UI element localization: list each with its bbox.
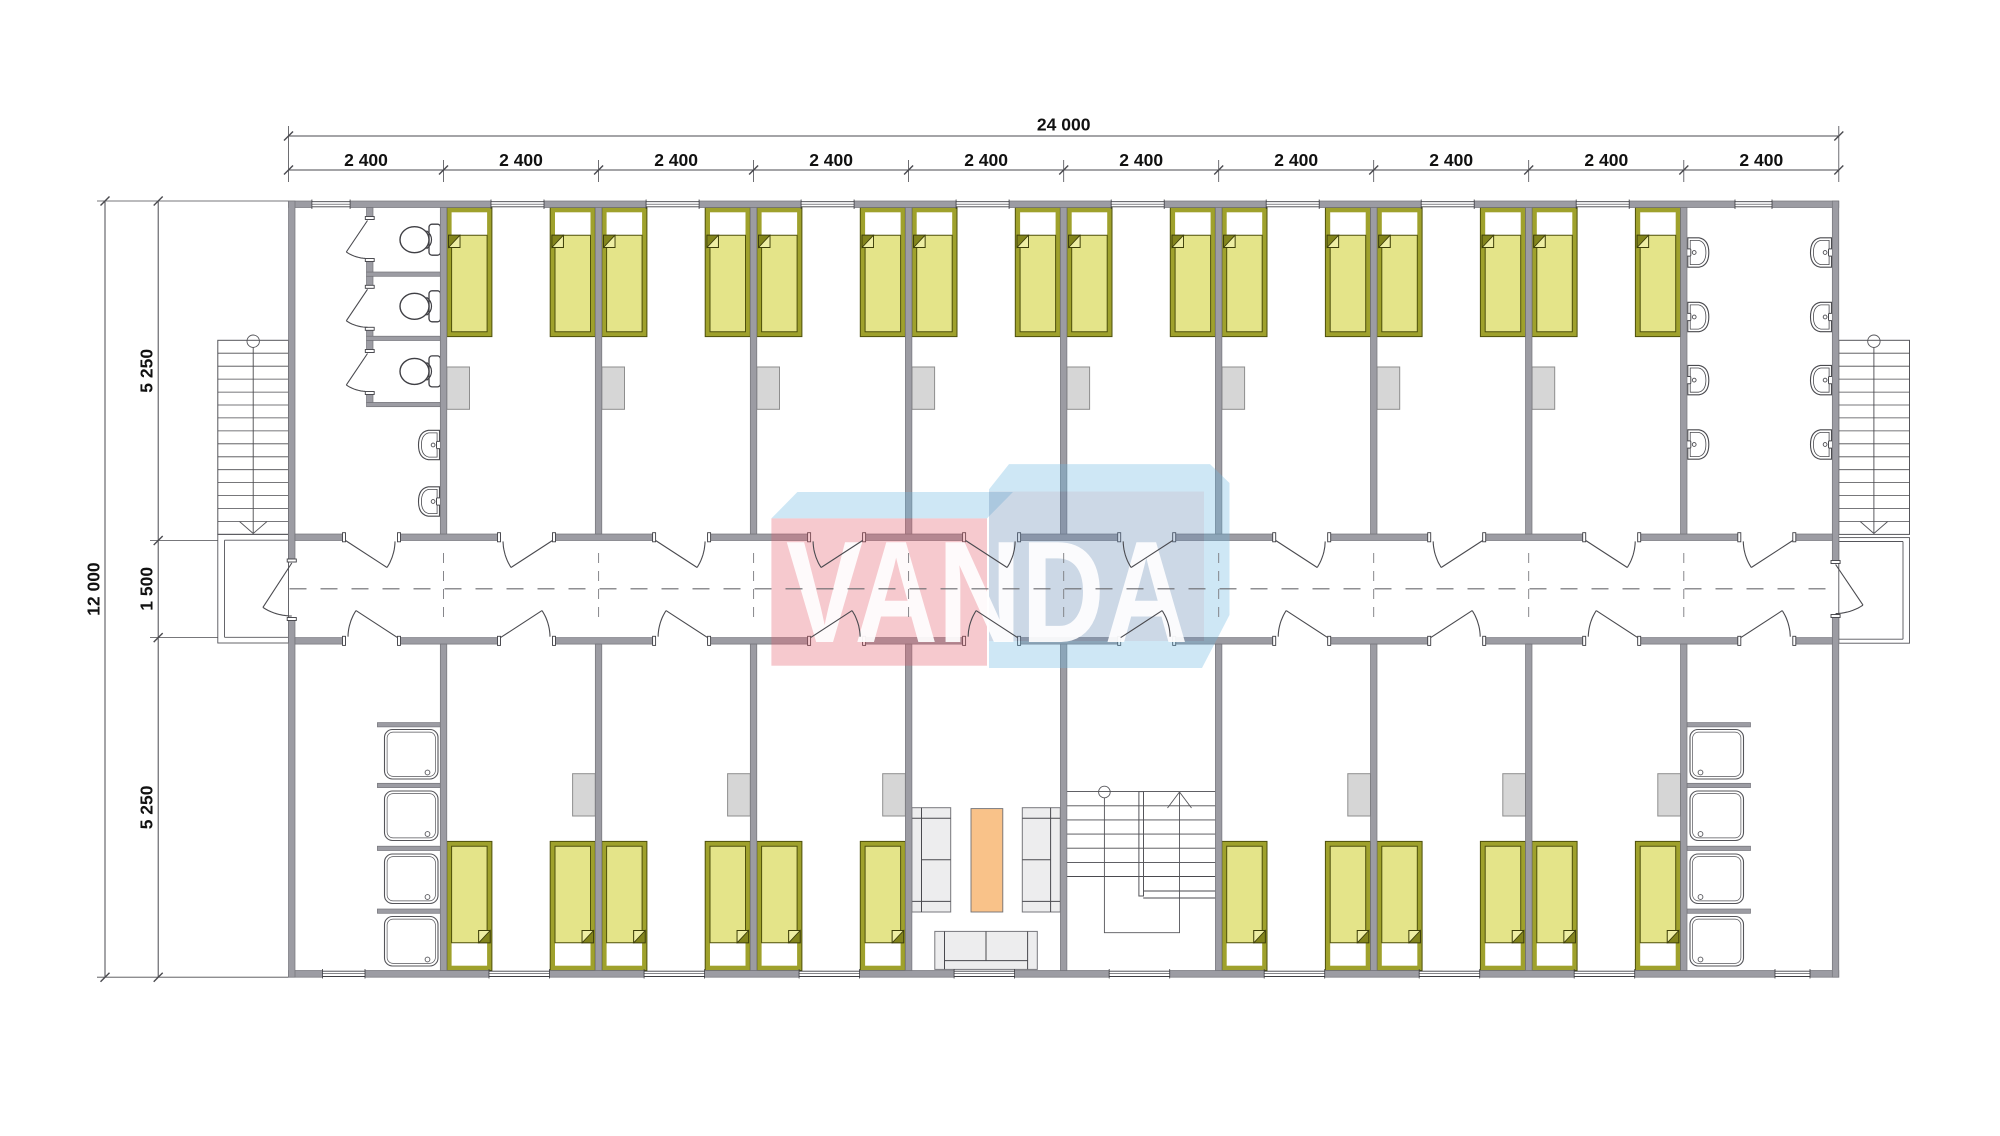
- svg-text:5 250: 5 250: [137, 785, 157, 829]
- svg-text:2 400: 2 400: [1119, 150, 1163, 170]
- svg-text:VANDA: VANDA: [786, 511, 1188, 673]
- svg-text:2 400: 2 400: [499, 150, 543, 170]
- svg-text:2 400: 2 400: [809, 150, 853, 170]
- svg-text:2 400: 2 400: [654, 150, 698, 170]
- svg-text:2 400: 2 400: [1739, 150, 1783, 170]
- svg-text:24 000: 24 000: [1037, 115, 1091, 135]
- svg-text:2 400: 2 400: [1274, 150, 1318, 170]
- svg-text:12 000: 12 000: [84, 562, 104, 616]
- svg-text:5 250: 5 250: [137, 349, 157, 393]
- svg-text:1 500: 1 500: [137, 567, 157, 611]
- svg-text:2 400: 2 400: [1429, 150, 1473, 170]
- svg-text:2 400: 2 400: [344, 150, 388, 170]
- svg-text:2 400: 2 400: [1584, 150, 1628, 170]
- svg-text:2 400: 2 400: [964, 150, 1008, 170]
